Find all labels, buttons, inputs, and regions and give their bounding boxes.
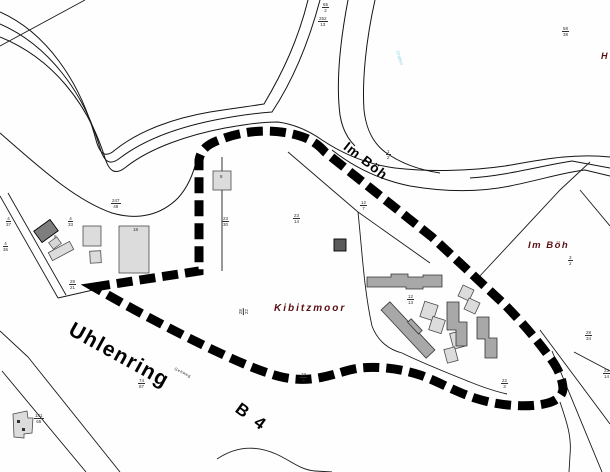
parcel-number: 24748: [111, 198, 121, 209]
parcel-number: 223: [501, 378, 508, 389]
building-annex: [22, 428, 25, 431]
buildings-layer: [13, 171, 497, 438]
building-dark: [334, 239, 346, 251]
parcel-number: 7487: [138, 378, 145, 389]
building: [119, 226, 149, 273]
parcel-number: 2314: [293, 213, 300, 224]
parcel-number: 14165: [34, 413, 44, 424]
building: [13, 411, 33, 438]
parcel-number: 8: [220, 174, 223, 179]
parcel-number: 198: [300, 372, 307, 383]
cadastral-map-canvas: Uhlenring B 4 Im Böh Kibitzmoor Im Böh H…: [0, 0, 610, 472]
building: [444, 347, 458, 363]
map-graphics: [0, 0, 610, 472]
building: [458, 285, 474, 301]
area-label-im-boeh: Im Böh: [528, 240, 569, 251]
plan-area-boundary: [94, 131, 563, 406]
parcel-number: 2821: [69, 279, 76, 290]
building: [90, 251, 102, 264]
parcel-number: 652: [322, 2, 329, 13]
parcel-number: 32: [568, 255, 573, 266]
apartment-building: [477, 317, 497, 358]
parcel-number: 18: [133, 227, 138, 232]
parcel-number: 437: [6, 216, 11, 227]
apartment-building: [367, 274, 442, 289]
parcel-number: 436: [3, 241, 8, 252]
parcel-number: 8: [54, 234, 57, 239]
parcel-number: 1213: [407, 294, 414, 305]
area-label-cut-at-edge: H: [601, 51, 608, 61]
building: [83, 226, 101, 246]
parcel-number: 5838: [562, 26, 569, 37]
parcel-number: 12: [386, 149, 391, 160]
parcel-number: 2330: [222, 216, 229, 227]
parcel-number: 25213: [318, 16, 328, 27]
building-annex: [17, 420, 20, 423]
parcel-number: 433: [68, 216, 73, 227]
parcel-number: 2314: [603, 368, 610, 379]
building: [464, 298, 480, 314]
area-label-kibitzmoor: Kibitzmoor: [274, 303, 346, 314]
parcel-number: 2834: [585, 330, 592, 341]
parcel-number: 2822: [238, 308, 249, 315]
parcel-number: 127: [360, 200, 367, 211]
roads-layer: [0, 0, 610, 216]
